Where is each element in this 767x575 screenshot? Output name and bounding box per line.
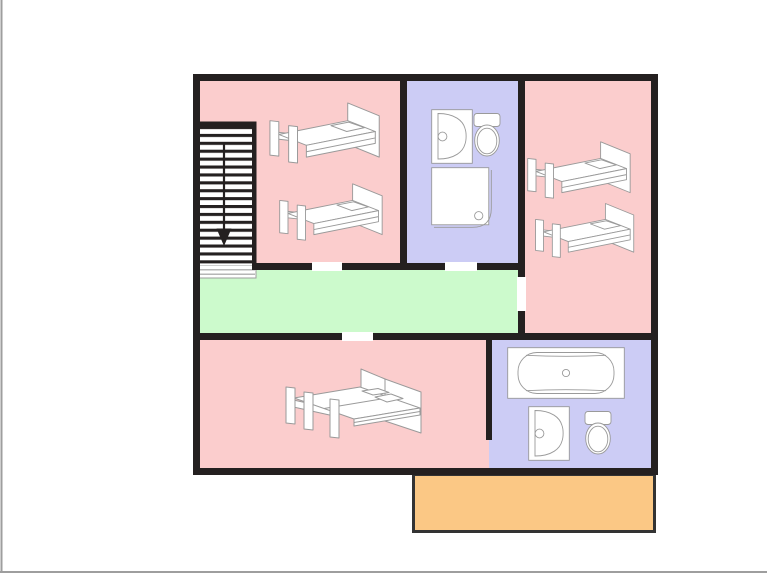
wall-bedroomB-bathroomB bbox=[486, 340, 492, 440]
room-bedroom-top-right bbox=[522, 77, 655, 337]
floor-plan-drawing bbox=[0, 0, 767, 575]
wall-outer-bottom bbox=[193, 468, 658, 475]
staircase-right-edge bbox=[252, 122, 257, 266]
shower-bathroomT bbox=[432, 168, 492, 228]
toilet-bathroomT bbox=[474, 114, 500, 157]
door-hallway-bedroomB bbox=[342, 332, 373, 341]
door-bedroomTL-hallway bbox=[312, 262, 342, 271]
door-hallway-bedroomTR bbox=[517, 277, 526, 311]
toilet-bathroomB bbox=[585, 412, 611, 455]
balcony bbox=[414, 475, 655, 532]
wall-outer-top bbox=[193, 74, 658, 81]
door-bathroomT-hallway bbox=[445, 262, 477, 271]
sink-bathroomB bbox=[529, 407, 570, 461]
wall-hallway-top bbox=[252, 263, 518, 270]
staircase bbox=[199, 122, 257, 279]
sink-bathroomT bbox=[432, 110, 473, 164]
wall-outer-right bbox=[651, 74, 658, 475]
wall-hallway-bottom bbox=[197, 333, 655, 340]
staircase-top-edge bbox=[199, 122, 257, 127]
bathtub-bathroomB bbox=[508, 348, 625, 399]
staircase-lower-treads bbox=[199, 265, 256, 278]
wall-outer-left bbox=[193, 74, 200, 475]
wall-bedroomTL-bathroom bbox=[400, 81, 407, 270]
floor-plan-canvas bbox=[0, 0, 767, 575]
staircase-treads bbox=[199, 126, 252, 265]
